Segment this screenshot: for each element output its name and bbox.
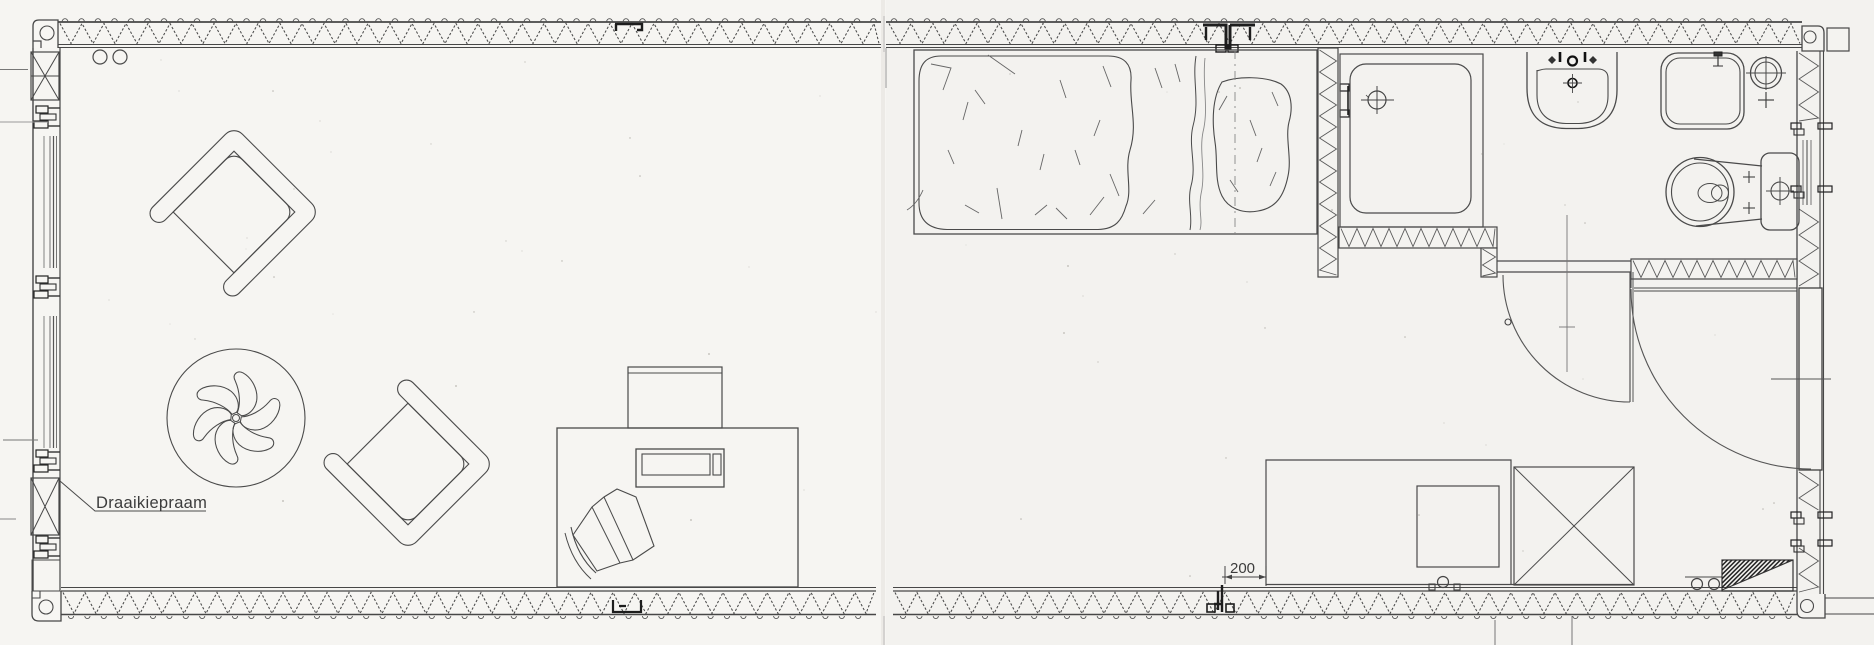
svg-text:Draaikiepraam: Draaikiepraam (96, 494, 207, 512)
svg-text:200: 200 (1230, 560, 1255, 577)
